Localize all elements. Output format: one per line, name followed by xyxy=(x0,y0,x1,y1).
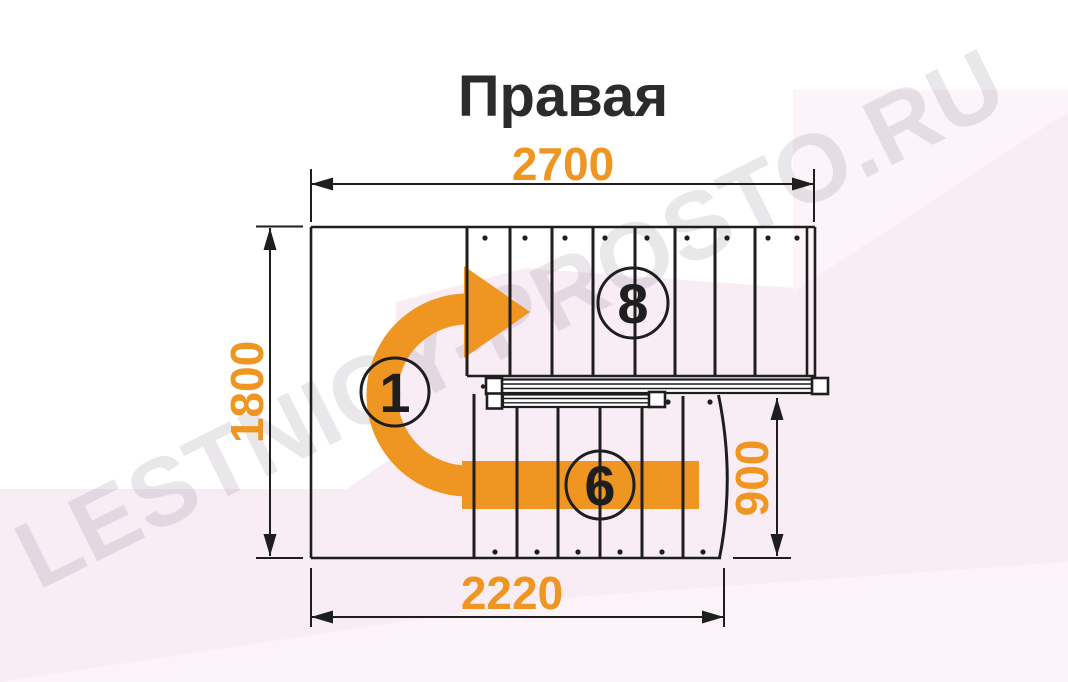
tread-dot xyxy=(684,235,689,240)
dim-arrowhead-left xyxy=(311,178,333,191)
rail-dot xyxy=(707,399,712,404)
tread-dot xyxy=(534,549,539,554)
tread-dot xyxy=(562,235,567,240)
diagram-svg: LESTNICY-PROSTO.RU xyxy=(0,0,1068,682)
page-title: Правая xyxy=(458,64,668,129)
rail-dot xyxy=(481,384,485,388)
tread-dot xyxy=(617,549,622,554)
tread-dot xyxy=(659,549,664,554)
staircase-plan-diagram: LESTNICY-PROSTO.RU xyxy=(0,0,1068,682)
tread-dot xyxy=(794,235,799,240)
step-number-label: 8 xyxy=(617,272,648,335)
rail-post xyxy=(487,394,502,409)
dimension-label-right: 900 xyxy=(726,440,778,517)
dimension-label-bottom: 2220 xyxy=(461,567,563,619)
step-number-label: 6 xyxy=(584,454,615,517)
dimension-label-left: 1800 xyxy=(221,341,273,443)
rail-post xyxy=(812,378,828,394)
tread-dot xyxy=(492,549,497,554)
tread-dot xyxy=(482,235,487,240)
rail-post xyxy=(649,392,665,407)
rail-post xyxy=(486,378,502,394)
tread-dot xyxy=(700,549,705,554)
tread-dot xyxy=(724,235,729,240)
dim-arrowhead-top xyxy=(264,228,277,250)
step-number-label: 1 xyxy=(379,361,410,424)
tread-dot xyxy=(644,235,649,240)
direction-arrow-tail-band xyxy=(462,461,699,509)
tread-dot xyxy=(765,235,770,240)
dimension-label-top: 2700 xyxy=(512,138,614,190)
lower-rail xyxy=(503,395,651,408)
tread-dot xyxy=(575,549,580,554)
tread-dot xyxy=(602,235,607,240)
rail-dot xyxy=(665,399,670,404)
tread-dot xyxy=(522,235,527,240)
